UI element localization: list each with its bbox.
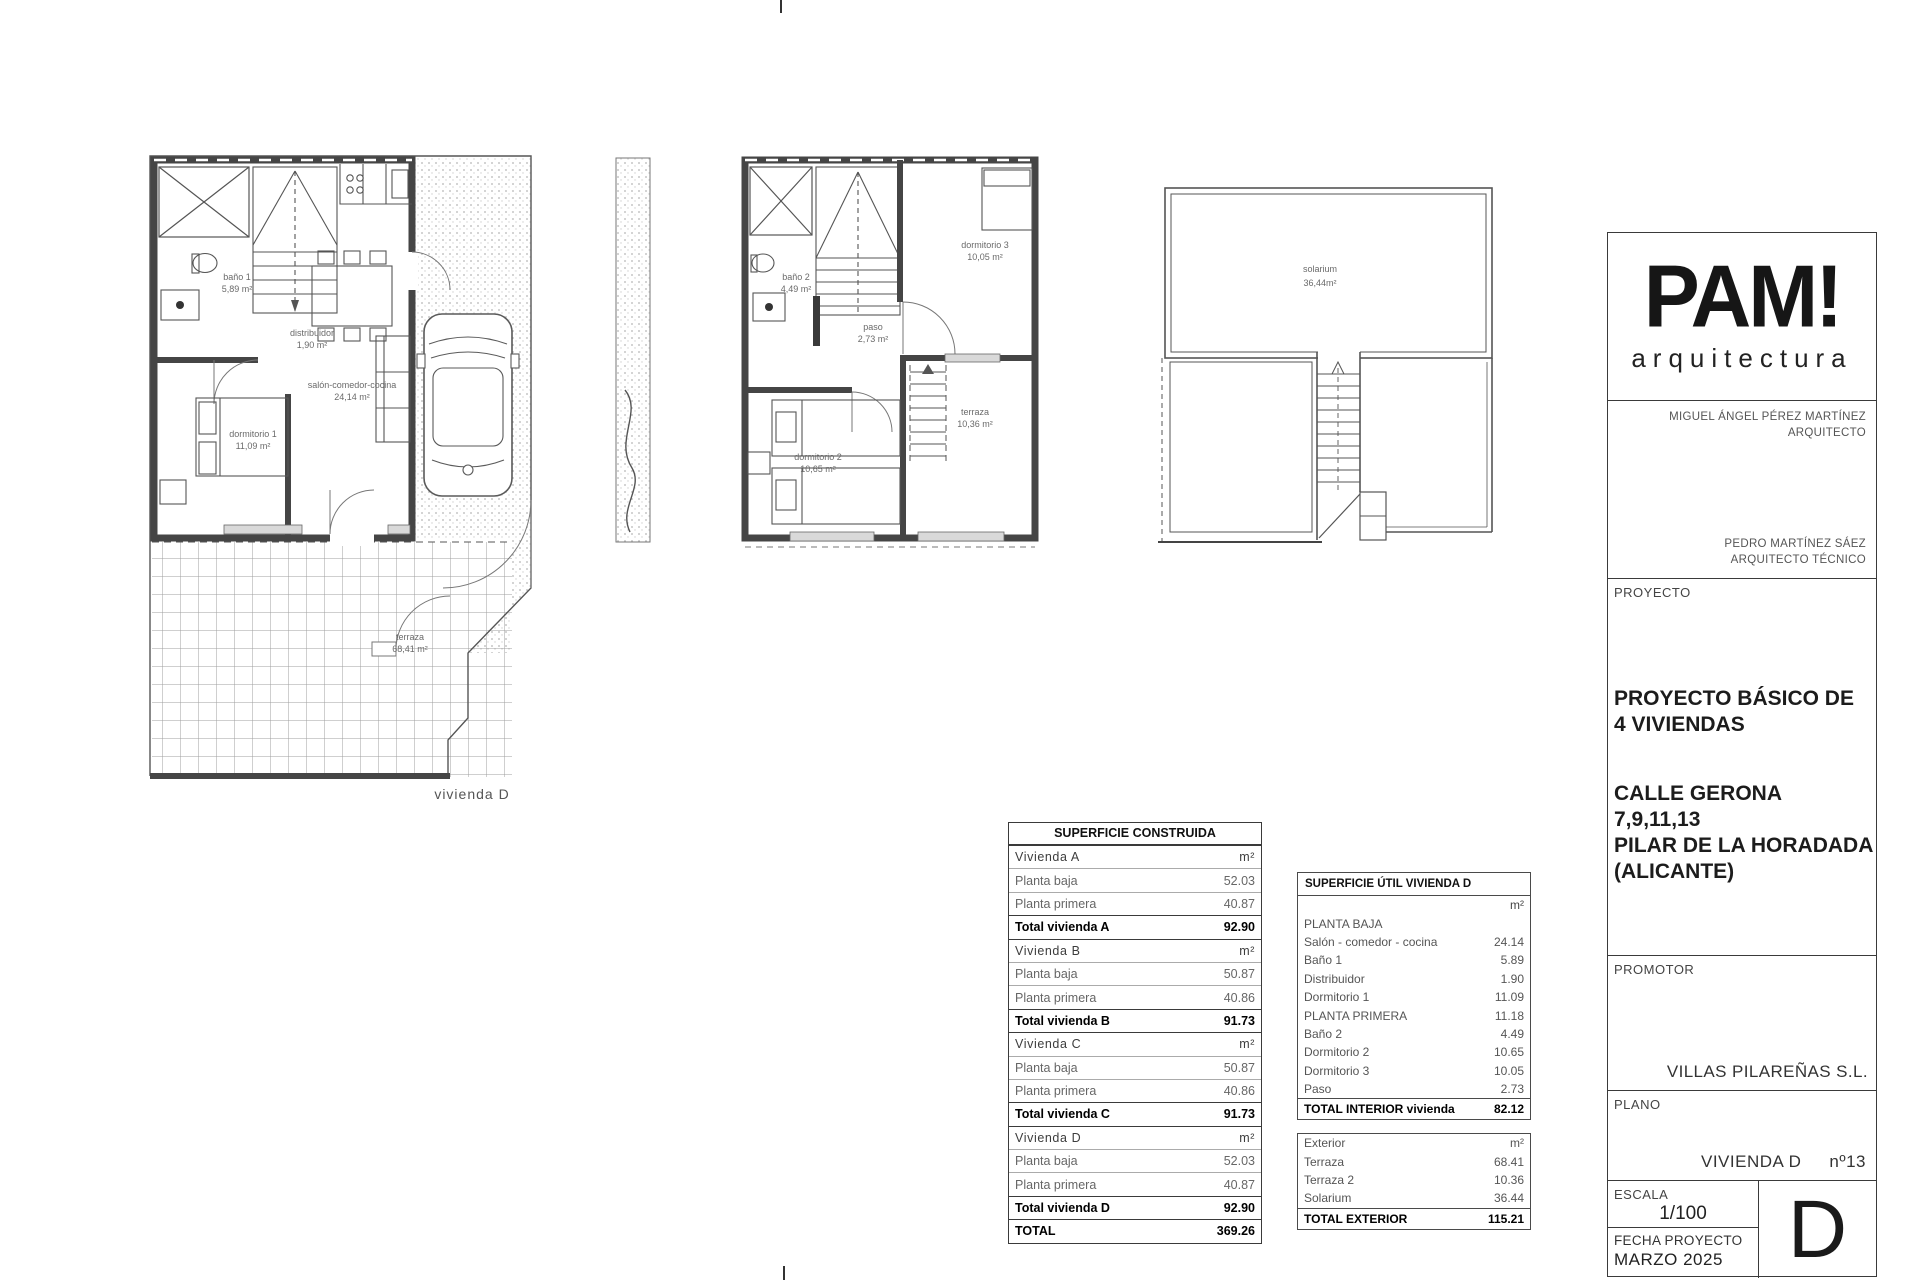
row-value: 40.86	[1224, 991, 1255, 1005]
row-label: Solarium	[1304, 1191, 1351, 1205]
architect-name: PEDRO MARTÍNEZ SÁEZ	[1724, 536, 1866, 552]
sheet-letter: D	[1788, 1189, 1847, 1271]
drawing-sheet: baño 1 5,89 m² distribuidor 1,90 m² saló…	[0, 0, 1920, 1280]
section-label: PROYECTO	[1608, 579, 1876, 600]
scale-date-column: ESCALA 1/100 FECHA PROYECTO MARZO 2025	[1608, 1181, 1759, 1278]
fecha-cell: FECHA PROYECTO MARZO 2025	[1608, 1228, 1758, 1278]
architects-box: MIGUEL ÁNGEL PÉREZ MARTÍNEZ ARQUITECTO P…	[1608, 401, 1876, 579]
row-value: 1.90	[1501, 972, 1524, 986]
row-label: Planta primera	[1015, 1084, 1096, 1098]
table-row: Exteriorm²	[1298, 1134, 1530, 1152]
row-value: 50.87	[1224, 1061, 1255, 1075]
house-walls	[745, 160, 1035, 538]
section-label: PLANO	[1608, 1091, 1876, 1112]
project-title: PROYECTO BÁSICO DE 4 VIVIENDAS	[1614, 686, 1876, 739]
table-row: TOTAL369.26	[1009, 1219, 1261, 1242]
row-value: 10.36	[1494, 1173, 1524, 1187]
row-value: 36.44	[1494, 1191, 1524, 1205]
architect-2: PEDRO MARTÍNEZ SÁEZ ARQUITECTO TÉCNICO	[1724, 536, 1866, 568]
row-label: Distribuidor	[1304, 972, 1365, 986]
room-label: terraza	[961, 407, 989, 417]
row-label: Salón - comedor - cocina	[1304, 935, 1437, 949]
logo-subtitle: arquitectura	[1631, 343, 1852, 374]
row-label: Dormitorio 1	[1304, 990, 1369, 1004]
room-label: dormitorio 3	[961, 240, 1009, 250]
row-value: 11.09	[1495, 990, 1524, 1004]
table-row: Dormitorio 210.65	[1298, 1043, 1530, 1061]
row-value: m²	[1239, 944, 1255, 958]
row-label: Planta primera	[1015, 897, 1096, 911]
room-area: 4,49 m²	[781, 284, 812, 294]
table-row: Salón - comedor - cocina24.14	[1298, 933, 1530, 951]
table-row: Solarium36.44	[1298, 1189, 1530, 1207]
row-label: Vivienda D	[1015, 1131, 1081, 1145]
plano-value: VIVIENDA D nº13	[1608, 1152, 1876, 1180]
row-label: Baño 1	[1304, 953, 1342, 967]
escala-cell: ESCALA 1/100	[1608, 1181, 1758, 1228]
section-label: PROMOTOR	[1608, 956, 1876, 977]
row-label: Total vivienda C	[1015, 1107, 1110, 1121]
table-row: Planta baja52.03	[1009, 1149, 1261, 1172]
room-label: terraza	[396, 632, 424, 642]
table-row: Vivienda Dm²	[1009, 1126, 1261, 1149]
room-label: paso	[863, 322, 883, 332]
row-value: m²	[1239, 850, 1255, 864]
house-walls	[154, 160, 412, 538]
room-area: 10,36 m²	[957, 419, 993, 429]
table-row: Planta primera40.87	[1009, 1172, 1261, 1195]
table-row: Planta baja52.03	[1009, 868, 1261, 891]
row-label: Planta baja	[1015, 1154, 1078, 1168]
row-value: 50.87	[1224, 967, 1255, 981]
project-title-line: 4 VIVIENDAS	[1614, 712, 1876, 738]
table-title: SUPERFICIE ÚTIL VIVIENDA D	[1298, 873, 1530, 896]
project-address: CALLE GERONA 7,9,11,13 PILAR DE LA HORAD…	[1614, 781, 1876, 886]
row-label: Vivienda B	[1015, 944, 1081, 958]
promotor-box: PROMOTOR VILLAS PILAREÑAS S.L.	[1608, 956, 1876, 1091]
row-value: 92.90	[1224, 920, 1255, 934]
row-label: Planta baja	[1015, 874, 1078, 888]
row-value: 91.73	[1224, 1014, 1255, 1028]
row-value: 82.12	[1494, 1102, 1524, 1116]
row-value: 369.26	[1217, 1224, 1255, 1238]
table-row: TOTAL EXTERIOR115.21	[1298, 1208, 1530, 1229]
table-row: Baño 15.89	[1298, 951, 1530, 969]
logo: PAM!	[1644, 257, 1840, 336]
room-area: 36,44m²	[1303, 278, 1336, 288]
row-value: 2.73	[1501, 1082, 1524, 1096]
row-value: 11.18	[1495, 1009, 1524, 1023]
row-label: Exterior	[1304, 1136, 1345, 1150]
table-row: Vivienda Cm²	[1009, 1032, 1261, 1055]
table-row: Paso2.73	[1298, 1080, 1530, 1098]
row-label: Paso	[1304, 1082, 1331, 1096]
car	[417, 314, 519, 496]
section-label: ESCALA	[1608, 1181, 1758, 1202]
row-label: Planta primera	[1015, 991, 1096, 1005]
plan-roof-solarium: solarium 36,44m²	[1158, 188, 1492, 544]
section-label: FECHA PROYECTO	[1608, 1228, 1758, 1248]
address-line: 7,9,11,13	[1614, 807, 1876, 833]
plano-box: PLANO VIVIENDA D nº13	[1608, 1091, 1876, 1181]
row-value: 10.65	[1494, 1045, 1524, 1059]
table-row: Total vivienda A92.90	[1009, 915, 1261, 938]
plan-first-floor: baño 2 4,49 m² paso 2,73 m² dormitorio 3…	[616, 158, 1035, 547]
room-area: 68,41 m²	[392, 644, 428, 654]
table-row: Planta primera40.86	[1009, 985, 1261, 1008]
row-label: TOTAL EXTERIOR	[1304, 1212, 1407, 1226]
row-label: PLANTA BAJA	[1304, 917, 1382, 931]
row-label: PLANTA PRIMERA	[1304, 1009, 1407, 1023]
room-label: dormitorio 2	[794, 452, 842, 462]
plano-name: VIVIENDA D	[1701, 1152, 1801, 1172]
row-label: Total vivienda A	[1015, 920, 1109, 934]
architect-name: MIGUEL ÁNGEL PÉREZ MARTÍNEZ	[1669, 409, 1866, 425]
row-value: 115.21	[1488, 1212, 1524, 1226]
table-title: SUPERFICIE CONSTRUIDA	[1009, 823, 1261, 845]
room-label: dormitorio 1	[229, 429, 277, 439]
plano-number: nº13	[1829, 1152, 1866, 1172]
table-row: m²	[1298, 896, 1530, 914]
escala-value: 1/100	[1608, 1203, 1758, 1225]
room-area: 1,90 m²	[297, 340, 328, 350]
room-area: 11,09 m²	[236, 441, 271, 451]
row-value: 5.89	[1501, 953, 1524, 967]
row-label: Planta primera	[1015, 1178, 1096, 1192]
table-row: Baño 24.49	[1298, 1025, 1530, 1043]
row-label: TOTAL	[1015, 1224, 1056, 1238]
row-label: Dormitorio 2	[1304, 1045, 1369, 1059]
table-row: Planta primera40.87	[1009, 892, 1261, 915]
row-value: 91.73	[1224, 1107, 1255, 1121]
room-area: 5,89 m²	[222, 284, 253, 294]
table-row: Planta baja50.87	[1009, 962, 1261, 985]
superficie-util-table: SUPERFICIE ÚTIL VIVIENDA D m² PLANTA BAJ…	[1297, 872, 1531, 1120]
dwelling-label: vivienda D	[434, 786, 509, 802]
room-label: solarium	[1303, 264, 1337, 274]
row-value: 68.41	[1494, 1155, 1524, 1169]
row-label: Terraza	[1304, 1155, 1344, 1169]
address-line: CALLE GERONA	[1614, 781, 1876, 807]
row-label: Planta baja	[1015, 1061, 1078, 1075]
table-row: Distribuidor1.90	[1298, 970, 1530, 988]
room-area: 2,73 m²	[858, 334, 889, 344]
row-value: 10.05	[1494, 1064, 1524, 1078]
table-row: PLANTA PRIMERA11.18	[1298, 1006, 1530, 1024]
table-row: Dormitorio 310.05	[1298, 1062, 1530, 1080]
row-value: 24.14	[1494, 935, 1524, 949]
scale-date-box: ESCALA 1/100 FECHA PROYECTO MARZO 2025 D	[1608, 1181, 1876, 1278]
row-label: Planta baja	[1015, 967, 1078, 981]
superficie-construida-table: SUPERFICIE CONSTRUIDA Vivienda Am² Plant…	[1008, 822, 1262, 1244]
room-area: 10,05 m²	[967, 252, 1003, 262]
architect-role: ARQUITECTO	[1669, 425, 1866, 441]
row-value: m²	[1510, 1136, 1524, 1150]
architect-role: ARQUITECTO TÉCNICO	[1724, 552, 1866, 568]
table-row: Vivienda Am²	[1009, 845, 1261, 868]
plan-ground-floor: baño 1 5,89 m² distribuidor 1,90 m² saló…	[150, 156, 531, 802]
room-label: distribuidor	[290, 328, 334, 338]
row-label: Vivienda A	[1015, 850, 1080, 864]
table-row: Terraza 210.36	[1298, 1171, 1530, 1189]
row-value: 52.03	[1224, 874, 1255, 888]
address-line: (ALICANTE)	[1614, 859, 1876, 885]
row-value: 40.87	[1224, 897, 1255, 911]
row-value: 40.86	[1224, 1084, 1255, 1098]
row-label: Terraza 2	[1304, 1173, 1354, 1187]
terraza-grid	[152, 542, 512, 777]
sheet-letter-cell: D	[1759, 1181, 1876, 1278]
title-block: PAM! arquitectura MIGUEL ÁNGEL PÉREZ MAR…	[1607, 232, 1877, 1277]
table-row: Terraza68.41	[1298, 1152, 1530, 1170]
table-row: PLANTA BAJA	[1298, 914, 1530, 932]
logo-box: PAM! arquitectura	[1608, 233, 1876, 401]
row-value: m²	[1510, 898, 1524, 912]
row-label: TOTAL INTERIOR vivienda	[1304, 1102, 1455, 1116]
proyecto-box: PROYECTO PROYECTO BÁSICO DE 4 VIVIENDAS …	[1608, 579, 1876, 956]
row-label: Dormitorio 3	[1304, 1064, 1369, 1078]
table-row: Planta primera40.86	[1009, 1079, 1261, 1102]
roof-stair	[1317, 352, 1386, 540]
row-value: 4.49	[1501, 1027, 1524, 1041]
row-value: 40.87	[1224, 1178, 1255, 1192]
architect-1: MIGUEL ÁNGEL PÉREZ MARTÍNEZ ARQUITECTO	[1669, 409, 1866, 441]
room-area: 10,65 m²	[800, 464, 836, 474]
side-garden-strip	[616, 158, 650, 542]
row-label: Total vivienda D	[1015, 1201, 1110, 1215]
table-row: Total vivienda B91.73	[1009, 1009, 1261, 1032]
row-value: m²	[1239, 1131, 1255, 1145]
address-line: PILAR DE LA HORADADA	[1614, 833, 1876, 859]
room-area: 24,14 m²	[334, 392, 370, 402]
fecha-value: MARZO 2025	[1608, 1248, 1758, 1270]
room-label: baño 2	[782, 272, 810, 282]
project-title-line: PROYECTO BÁSICO DE	[1614, 686, 1876, 712]
promotor-value: VILLAS PILAREÑAS S.L.	[1608, 1062, 1876, 1090]
table-row: Total vivienda C91.73	[1009, 1102, 1261, 1125]
table-row: TOTAL INTERIOR vivienda82.12	[1298, 1098, 1530, 1119]
room-label: baño 1	[223, 272, 251, 282]
row-value: 52.03	[1224, 1154, 1255, 1168]
room-label: salón-comedor-cocina	[308, 380, 397, 390]
table-row: Vivienda Bm²	[1009, 939, 1261, 962]
superficie-exterior-table: Exteriorm² Terraza68.41 Terraza 210.36 S…	[1297, 1133, 1531, 1230]
row-value: m²	[1239, 1037, 1255, 1051]
table-row: Dormitorio 111.09	[1298, 988, 1530, 1006]
row-label: Total vivienda B	[1015, 1014, 1110, 1028]
table-row: Total vivienda D92.90	[1009, 1196, 1261, 1219]
table-row: Planta baja50.87	[1009, 1056, 1261, 1079]
row-label: Baño 2	[1304, 1027, 1342, 1041]
row-value: 92.90	[1224, 1201, 1255, 1215]
row-label: Vivienda C	[1015, 1037, 1081, 1051]
